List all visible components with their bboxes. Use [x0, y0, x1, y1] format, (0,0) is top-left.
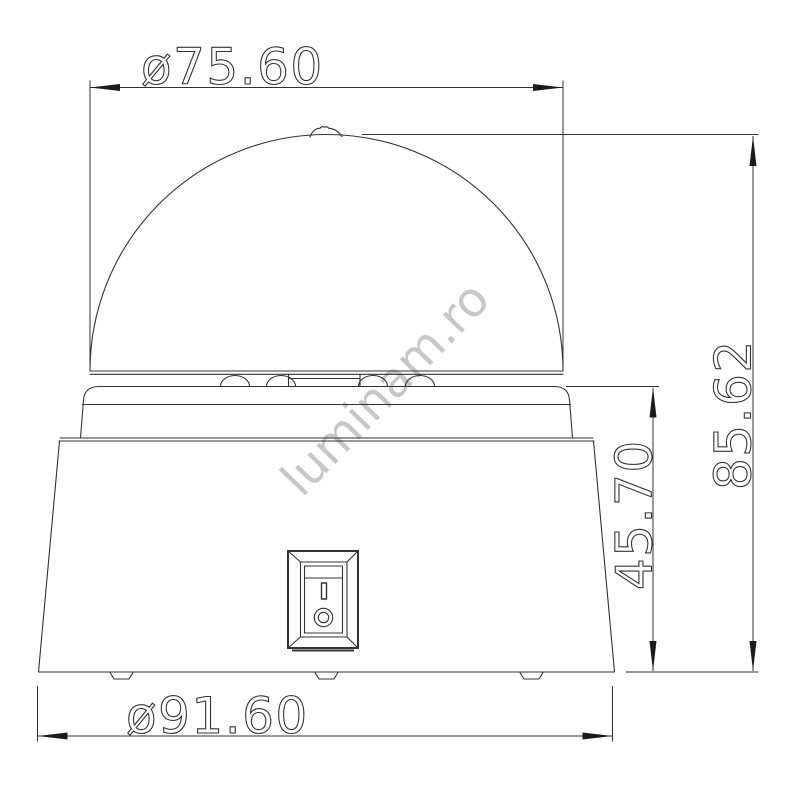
dim-arrow-right	[583, 733, 613, 740]
dim-label-total-height: 85.62	[705, 339, 763, 490]
dim-arrow-down	[650, 641, 657, 671]
watermark-text: luminam.ro	[270, 271, 500, 507]
dim-arrow-right	[533, 84, 563, 91]
switch-off-icon-inner	[318, 612, 328, 622]
dome-rim	[90, 371, 563, 374]
dim-label-base-height: 45.70	[606, 439, 664, 590]
dim-extension-lines	[362, 135, 759, 673]
switch-off-icon	[314, 608, 332, 626]
dome-outline	[90, 135, 563, 372]
technical-drawing-page: luminam.ro	[0, 0, 800, 800]
dome-top-knob	[310, 127, 342, 137]
dim-arrow-left	[90, 84, 120, 91]
dim-base-height: 45.70	[566, 387, 664, 672]
dim-label-dome-diameter: ø75.60	[141, 38, 324, 96]
dim-arrow-left	[38, 733, 68, 740]
dim-arrow-down	[750, 641, 757, 671]
base-feet	[110, 673, 543, 680]
power-switch	[288, 551, 358, 651]
dim-arrow-up	[750, 136, 757, 166]
dim-label-base-diameter: ø91.60	[126, 687, 309, 745]
dim-extension-lines	[90, 81, 563, 372]
dim-dome-diameter: ø75.60	[90, 38, 563, 371]
dim-base-diameter: ø91.60	[38, 686, 613, 745]
dim-arrow-up	[650, 388, 657, 418]
dome-party-light-technical-drawing: luminam.ro	[0, 0, 800, 800]
dim-extension-lines	[38, 686, 613, 742]
switch-on-icon	[322, 583, 327, 599]
dim-total-height: 85.62	[362, 135, 763, 673]
